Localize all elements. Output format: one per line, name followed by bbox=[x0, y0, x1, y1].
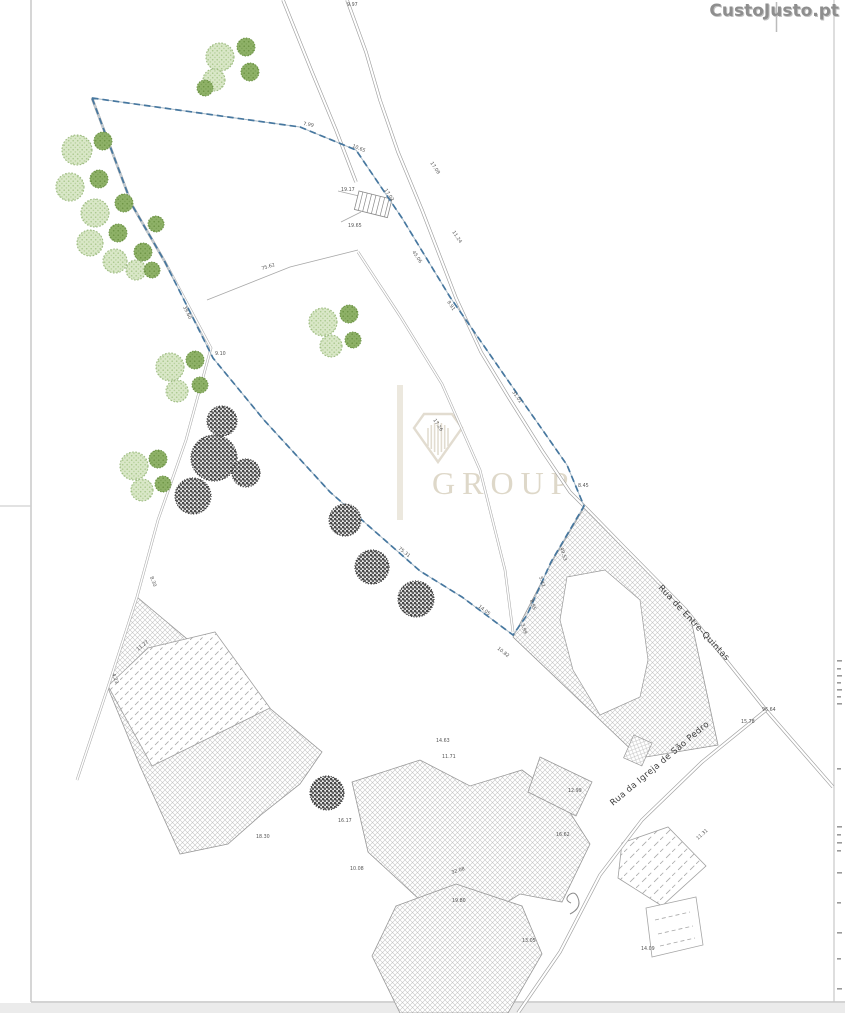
gate-curl-symbol bbox=[567, 893, 579, 914]
dimension-label: 10.82 bbox=[496, 646, 511, 659]
dimension-label: 19.80 bbox=[452, 898, 466, 904]
dimension-label: 10.65 bbox=[351, 143, 366, 154]
dark-shrub-tree bbox=[329, 504, 361, 536]
green-tree-small bbox=[144, 262, 160, 278]
dimension-label: 8.45 bbox=[578, 483, 589, 489]
green-tree-small bbox=[192, 377, 208, 393]
dimension-label: 15.78 bbox=[741, 719, 755, 725]
dimension-label: 18.30 bbox=[256, 834, 270, 840]
green-tree-small bbox=[149, 450, 167, 468]
cropped-margin-text bbox=[837, 660, 842, 990]
green-tree-small bbox=[237, 38, 255, 56]
dark-shrub-tree bbox=[175, 478, 211, 514]
green-tree-canopy bbox=[81, 199, 109, 227]
green-tree-canopy bbox=[126, 260, 146, 280]
dark-shrub-tree bbox=[207, 406, 237, 436]
road-top-right bbox=[347, 0, 584, 506]
green-tree-small bbox=[197, 80, 213, 96]
green-tree-small bbox=[340, 305, 358, 323]
dimension-label: 12.99 bbox=[568, 788, 582, 794]
dimension-label: 75.62 bbox=[261, 262, 276, 272]
green-tree-small bbox=[94, 132, 112, 150]
dimension-label: 13.05 bbox=[522, 938, 536, 944]
dimension-label: 14.63 bbox=[436, 738, 450, 744]
dimension-label: 14.09 bbox=[641, 946, 655, 952]
green-tree-canopy bbox=[62, 135, 92, 165]
dimension-label: 16.17 bbox=[338, 818, 352, 824]
green-tree-canopy bbox=[156, 353, 184, 381]
green-tree-small bbox=[109, 224, 127, 242]
green-tree-canopy bbox=[77, 230, 103, 256]
green-tree-small bbox=[90, 170, 108, 188]
site-plan-page: GROUP bbox=[0, 0, 845, 1013]
diagonal-parcel-southeast bbox=[618, 827, 706, 906]
dark-shrub-tree bbox=[191, 435, 237, 481]
green-tree-small bbox=[345, 332, 361, 348]
green-tree-canopy bbox=[206, 43, 234, 71]
green-tree-small bbox=[155, 476, 171, 492]
dark-shrub-tree bbox=[310, 776, 344, 810]
dimension-label: 17.08 bbox=[428, 161, 441, 176]
green-tree-canopy bbox=[166, 380, 188, 402]
dimension-label: 16.62 bbox=[556, 832, 570, 838]
division-line bbox=[207, 250, 358, 300]
site-plan: GROUP bbox=[0, 0, 845, 1013]
green-tree-small bbox=[148, 216, 164, 232]
green-tree-canopy bbox=[131, 479, 153, 501]
dark-shrub-tree bbox=[232, 459, 260, 487]
dimension-label: 8.91 bbox=[445, 300, 456, 312]
dimension-label: 19.17 bbox=[341, 187, 355, 193]
green-tree-canopy bbox=[120, 452, 148, 480]
dark-shrub-tree bbox=[398, 581, 434, 617]
dimension-label: 7.99 bbox=[303, 121, 315, 129]
dimension-label: 9.97 bbox=[347, 2, 358, 8]
green-tree-small bbox=[115, 194, 133, 212]
dimension-label: 10.08 bbox=[350, 866, 364, 872]
dimension-label: 11.71 bbox=[442, 754, 456, 760]
custojusto-logo: CustoJusto.pt bbox=[709, 1, 839, 21]
green-tree-small bbox=[134, 243, 152, 261]
green-tree-small bbox=[186, 351, 204, 369]
green-tree-canopy bbox=[103, 249, 127, 273]
dimension-label: 9.10 bbox=[215, 351, 226, 357]
dark-shrub-tree bbox=[355, 550, 389, 584]
green-tree-canopy bbox=[320, 335, 342, 357]
dimension-label: 19.65 bbox=[348, 223, 362, 229]
green-tree-canopy bbox=[309, 308, 337, 336]
dimension-label: 8.30 bbox=[148, 576, 157, 588]
dimension-label: 11.31 bbox=[695, 828, 709, 842]
dimension-label: 45.06 bbox=[410, 250, 423, 265]
green-tree-small bbox=[241, 63, 259, 81]
dimension-label: 11.24 bbox=[450, 230, 463, 245]
green-tree-canopy bbox=[56, 173, 84, 201]
dimension-label: 96.64 bbox=[762, 707, 776, 713]
watermark-bar bbox=[397, 385, 403, 520]
